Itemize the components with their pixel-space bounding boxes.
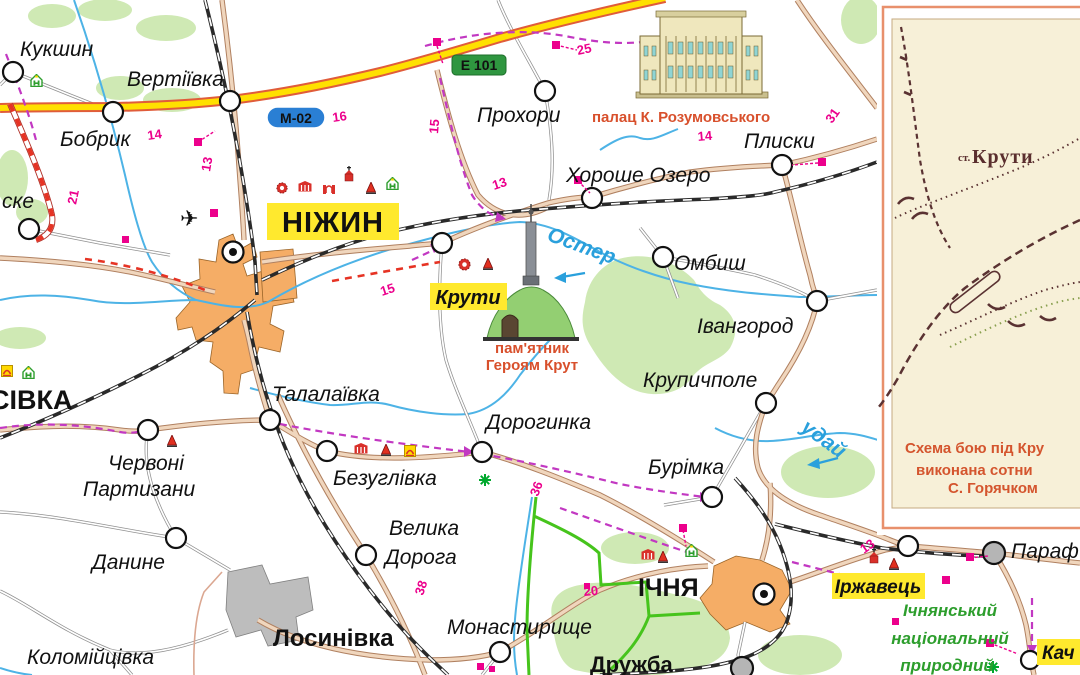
monument-icon <box>483 258 493 269</box>
label-prokhory: Прохори <box>477 104 561 127</box>
label-sivka: СІВКА <box>0 385 72 415</box>
inset-battle-scheme: ст. Крути Схема бою під Кру виконана сот… <box>877 0 1080 535</box>
thin-local-road <box>194 572 222 675</box>
star-icon <box>479 474 491 486</box>
inset-caption-line1: Схема бою під Кру <box>905 440 1045 457</box>
memorial-caption-line2: Героям Крут <box>486 357 578 374</box>
inset-map-paper <box>892 19 1080 508</box>
node-ivanhorod <box>807 291 827 311</box>
fortress-icon <box>459 259 470 270</box>
label-plysky: Плиски <box>744 130 815 153</box>
distance: 38 <box>412 579 431 597</box>
node-ombysh <box>653 247 673 267</box>
label-nizhyn: НІЖИН <box>282 207 384 239</box>
church-icon <box>345 166 353 181</box>
distance: 31 <box>822 105 843 125</box>
topographic-map: ✈ Остер удай Е 101 <box>0 0 1080 675</box>
hotel-icon <box>23 367 34 379</box>
node-kukshyn <box>3 62 23 82</box>
palace-illustration <box>636 11 768 98</box>
distance: 14 <box>697 128 713 144</box>
label-velyka-doroha-2: Дорога <box>383 546 457 569</box>
distance: 13 <box>198 156 215 173</box>
map-canvas: ✈ Остер удай Е 101 <box>0 0 1080 675</box>
distance: 21 <box>64 188 82 205</box>
label-ske: ске <box>2 190 34 213</box>
distance: 25 <box>576 40 593 58</box>
inset-caption-line3: С. Горячком <box>948 480 1038 497</box>
river-oster-label: Остер <box>544 223 619 269</box>
node-chervoni-partyzany <box>138 420 158 440</box>
label-ivanhorod: Івангород <box>697 315 793 338</box>
node-danyne <box>166 528 186 548</box>
hotel-icon <box>387 178 398 190</box>
label-losynivka: Лосинівка <box>273 625 394 652</box>
park-label-line1: Ічнянський <box>903 601 998 620</box>
node-irzhavets-junction <box>898 536 918 556</box>
node-ske <box>19 219 39 239</box>
label-danyne: Данине <box>90 551 165 574</box>
node-dorohynka <box>472 442 492 462</box>
label-burimka: Бурімка <box>648 456 724 479</box>
node-kachanivka <box>1021 651 1039 669</box>
node-bezuhlivka <box>317 441 337 461</box>
sign-e101: Е 101 <box>461 57 498 73</box>
museum-icon <box>354 443 368 454</box>
distance: 15 <box>378 280 396 299</box>
sight-box-icon <box>2 366 13 377</box>
label-dorohynka: Дорогинка <box>484 411 591 434</box>
label-druzhba: Дружба <box>590 652 674 675</box>
node-kruty <box>432 233 452 253</box>
label-ombysh: Омбиш <box>674 252 746 275</box>
monument-icon <box>366 182 376 193</box>
label-kruty: Крути <box>435 287 500 309</box>
label-chervoni-partyzany-1: Червоні <box>108 452 185 475</box>
sign-m02: М-02 <box>280 110 312 126</box>
label-vertiivka: Вертіївка <box>127 68 224 91</box>
node-khoroshe-ozero <box>582 188 602 208</box>
label-ichnia: ІЧНЯ <box>638 574 699 602</box>
airport-icon: ✈ <box>180 206 198 231</box>
distance: 15 <box>426 119 442 135</box>
distance: 14 <box>146 126 163 143</box>
national-park-label: Ічнянський національний природний <box>891 601 1009 675</box>
node-druzhba-station <box>731 657 753 675</box>
inset-station-name: Крути <box>972 146 1034 168</box>
node-velyka-doroha <box>356 545 376 565</box>
monument-icon <box>167 435 177 446</box>
museum-icon <box>298 181 312 192</box>
distance: 13 <box>490 174 508 193</box>
label-krupychpole: Крупичполе <box>643 369 757 392</box>
label-kolomiitsivka: Коломійцівка <box>27 646 154 669</box>
distance: 16 <box>331 108 347 125</box>
inset-caption-line2: виконана сотни <box>916 462 1033 479</box>
node-burimka <box>702 487 722 507</box>
label-talalaivka: Талалаївка <box>272 383 380 406</box>
node-bobryk <box>103 102 123 122</box>
node-monastyryshche <box>490 642 510 662</box>
label-monastyryshche: Монастирище <box>447 616 592 639</box>
gate-icon <box>323 185 335 194</box>
inset-station-prefix: ст. <box>958 152 970 164</box>
label-bobryk: Бобрик <box>60 128 132 151</box>
node-talalaivka <box>260 410 280 430</box>
label-parafiivka: Параф <box>1011 540 1079 563</box>
palace-caption: палац К. Розумовського <box>592 109 770 126</box>
distance: 36 <box>527 479 546 498</box>
node-prokhory <box>535 81 555 101</box>
label-bezuhlivka: Безуглівка <box>333 467 437 490</box>
label-khoroshe-ozero: Хороше Озеро <box>565 164 711 187</box>
monument-icon <box>381 444 391 455</box>
label-kachanivka: Кач <box>1042 643 1075 664</box>
sight-box-icon <box>405 446 416 457</box>
distance: 20 <box>583 583 599 599</box>
fortress-icon <box>277 183 287 193</box>
node-vertiivka <box>220 91 240 111</box>
label-chervoni-partyzany-2: Партизани <box>83 478 196 501</box>
node-parafiivka-station <box>983 542 1005 564</box>
park-label-line2: національний <box>891 629 1009 648</box>
park-label-line3: природний <box>900 656 994 675</box>
node-krupychpole <box>756 393 776 413</box>
label-kukshyn: Кукшин <box>20 38 94 61</box>
label-velyka-doroha-1: Велика <box>389 517 459 540</box>
node-plysky <box>772 155 792 175</box>
hotel-icon <box>31 75 42 87</box>
label-irzhavets: Іржавець <box>835 577 922 598</box>
monument-icon <box>889 558 899 569</box>
memorial-caption-line1: пам'ятник <box>495 340 569 357</box>
